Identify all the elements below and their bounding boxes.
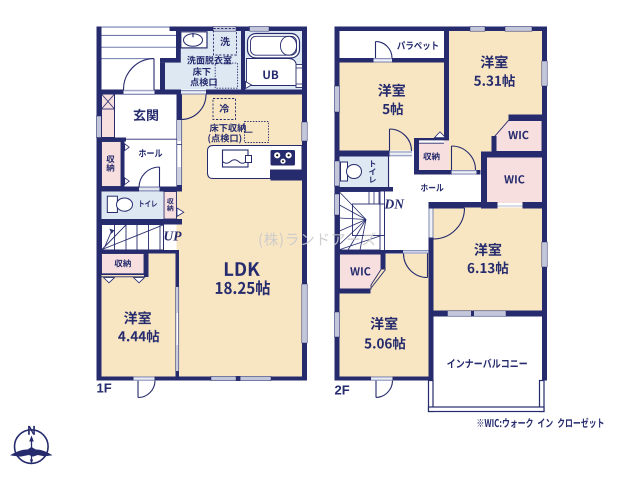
svg-text:2F: 2F <box>335 383 350 398</box>
svg-text:1F: 1F <box>97 381 112 396</box>
svg-text:DN: DN <box>384 197 406 212</box>
svg-text:UP: UP <box>164 229 183 244</box>
